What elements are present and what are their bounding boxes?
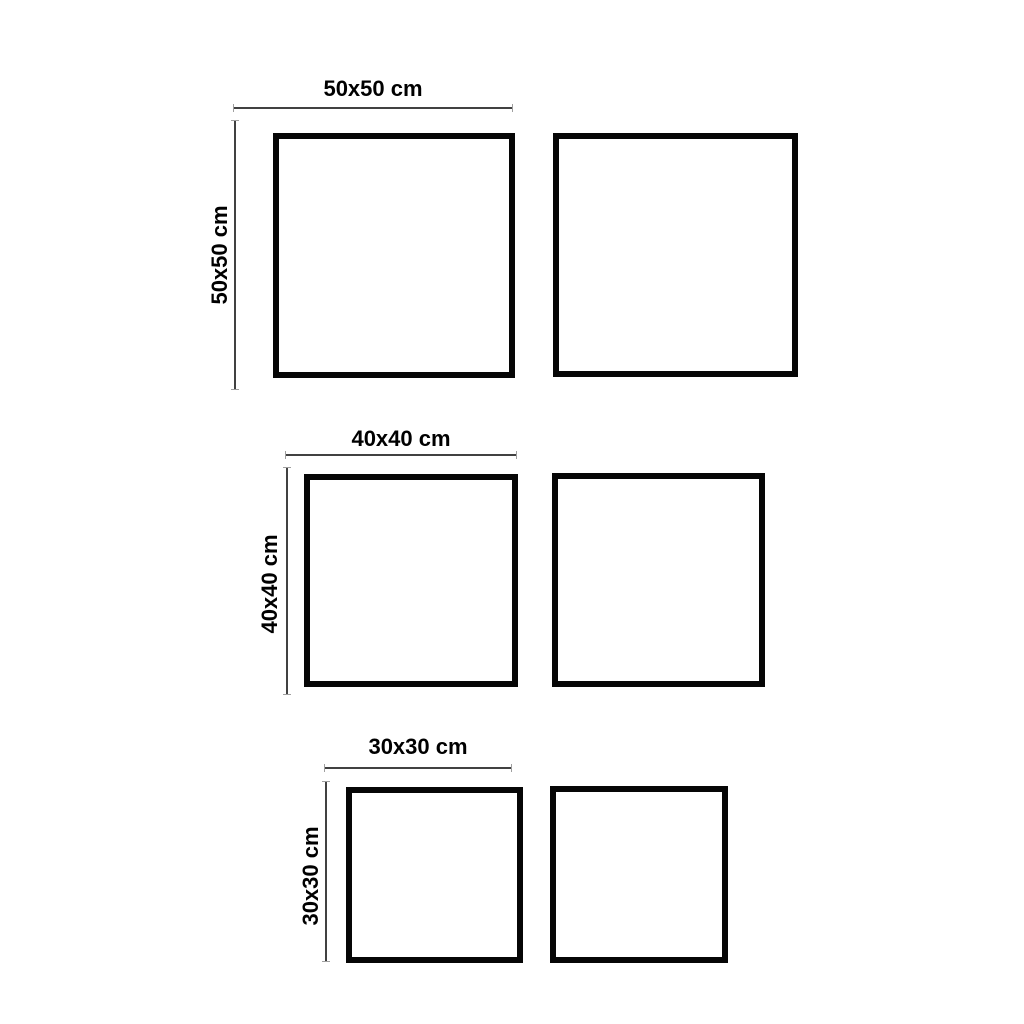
square-30x30-right — [550, 786, 728, 963]
square-40x40-left — [304, 474, 518, 687]
width-dimension-line-50x50 — [233, 107, 513, 109]
width-dimension-line-30x30 — [324, 767, 512, 769]
square-40x40-right — [552, 473, 765, 687]
width-dimension-line-40x40 — [285, 454, 517, 456]
height-dimension-line-30x30 — [325, 781, 327, 962]
square-50x50-right — [553, 133, 798, 377]
height-label-50x50: 50x50 cm — [208, 185, 232, 325]
height-dimension-line-40x40 — [286, 467, 288, 695]
height-label-30x30: 30x30 cm — [299, 806, 323, 946]
height-dimension-line-50x50 — [234, 120, 236, 390]
size-diagram-canvas: 50x50 cm 50x50 cm 40x40 cm 40x40 cm 30x3… — [0, 0, 1024, 1024]
square-30x30-left — [346, 787, 523, 963]
height-label-40x40: 40x40 cm — [258, 514, 282, 654]
width-label-30x30: 30x30 cm — [324, 736, 512, 758]
square-50x50-left — [273, 133, 515, 378]
width-label-40x40: 40x40 cm — [285, 428, 517, 450]
width-label-50x50: 50x50 cm — [233, 78, 513, 100]
